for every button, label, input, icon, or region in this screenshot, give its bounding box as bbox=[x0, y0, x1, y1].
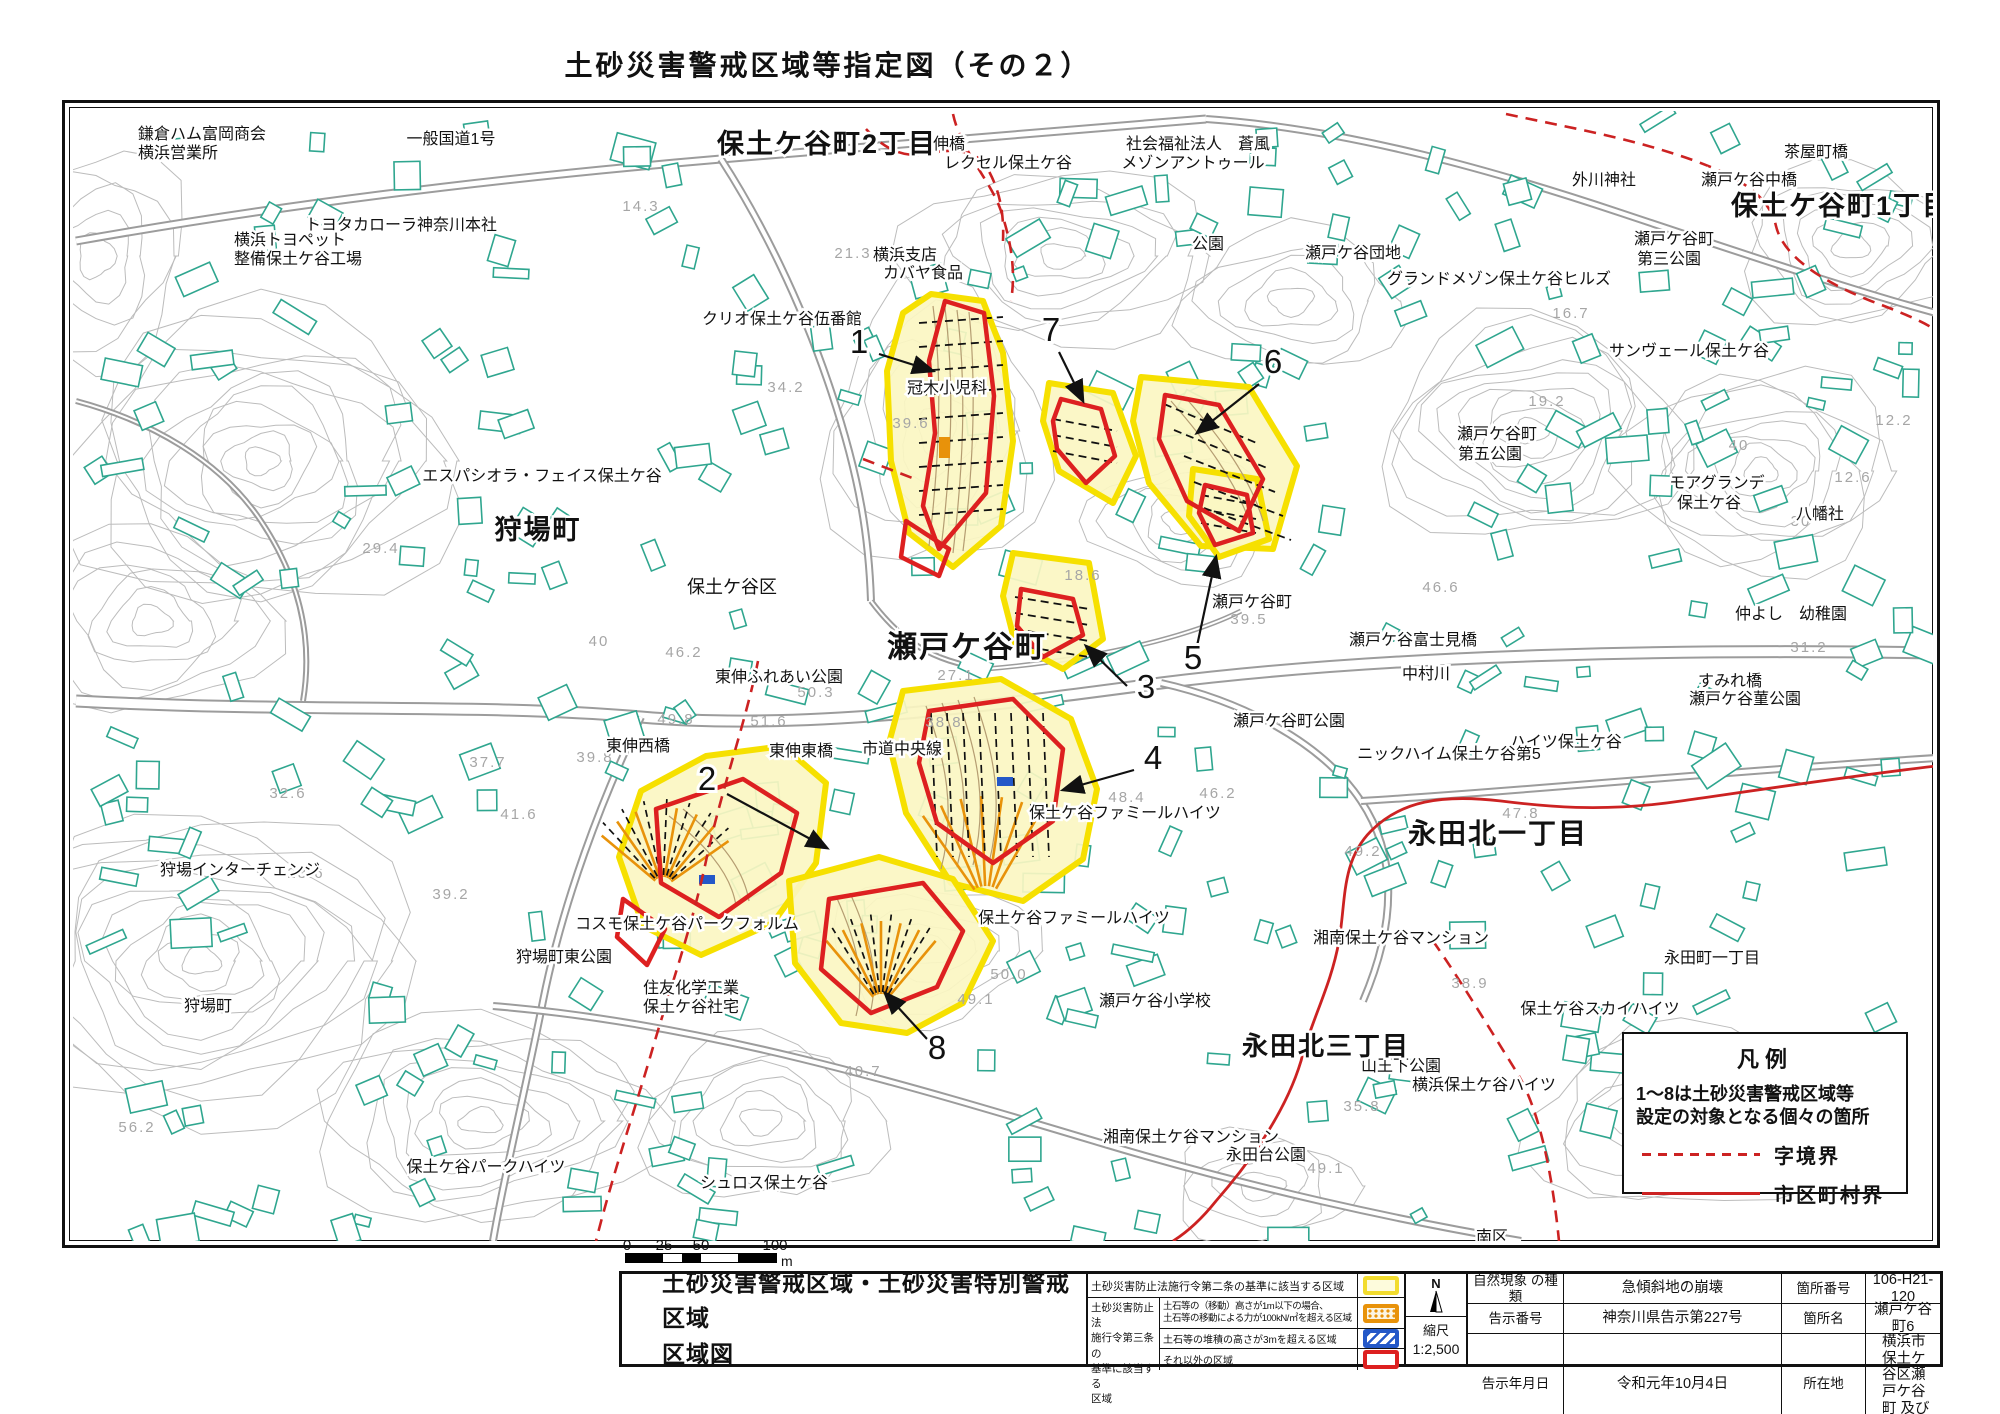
elevation-label: 39.2 bbox=[432, 886, 469, 903]
elevation-label: 40.7 bbox=[844, 1063, 881, 1080]
elevation-label: 34.2 bbox=[767, 379, 804, 396]
dashed-red-line-sample bbox=[1642, 1153, 1760, 1156]
scale-bar-ticks: 0 25 50 100 bbox=[625, 1237, 777, 1253]
sheet-title-line1: 土砂災害警戒区域・土砂災害特別警戒区域 bbox=[662, 1266, 1086, 1337]
map-place-label: 瀬戸ケ谷小学校 bbox=[1099, 992, 1211, 1010]
zone-row-red-label: それ以外の区域 bbox=[1160, 1349, 1358, 1370]
elevation-label: 27.1 bbox=[937, 667, 974, 684]
map-place-label: 狩場町 bbox=[184, 997, 232, 1015]
map-place-label: メゾンアントゥール bbox=[1121, 154, 1264, 172]
info-key: 告示番号 bbox=[1468, 1304, 1564, 1334]
map-place-label: すみれ橋 bbox=[1698, 672, 1762, 690]
sheet: 土砂災害警戒区域等指定図（その２） 14.321.334.239.616.719… bbox=[0, 0, 2000, 1414]
district-label: 瀬戸ケ谷町 bbox=[887, 631, 1047, 664]
map-place-label: 一般国道1号 bbox=[407, 130, 496, 148]
north-arrow-icon bbox=[1428, 1290, 1444, 1314]
map-place-label: 東伸ふれあい公園 bbox=[715, 668, 843, 686]
map-place-label: 横浜保土ケ谷ハイツ bbox=[1412, 1076, 1556, 1094]
info-value: 瀬戸ケ谷町6 bbox=[1866, 1304, 1940, 1334]
zone-marker-number: 8 bbox=[928, 1029, 946, 1066]
district-label: 永田北三丁目 bbox=[1242, 1031, 1410, 1061]
legend-item: 字境界 bbox=[1642, 1140, 1896, 1169]
scale-bar: 0 25 50 100 m bbox=[625, 1237, 777, 1263]
map-place-label: 東伸西橋 bbox=[606, 737, 670, 755]
elevation-label: 12.6 bbox=[1834, 469, 1871, 486]
map-place-label: 瀬戸ケ谷団地 bbox=[1305, 244, 1401, 262]
elevation-label: 49.1 bbox=[1307, 1160, 1344, 1177]
map-place-label: カバヤ食品 bbox=[883, 264, 963, 282]
map-place-label: 冠木小児科 bbox=[907, 379, 987, 397]
map-place-label: 保土ケ谷区 bbox=[687, 577, 777, 597]
scale-tick: 0 bbox=[623, 1237, 631, 1254]
elevation-label: 18.6 bbox=[1064, 567, 1101, 584]
elevation-label: 49.2 bbox=[1344, 843, 1381, 860]
map-place-label: 保土ケ谷スカイハイツ bbox=[1520, 1000, 1679, 1018]
info-key: 箇所名 bbox=[1782, 1304, 1866, 1334]
zone-row-orange-label: 土石等の（移動）高さが1m以下の場合、 土石等の移動による力が100kN/㎡を超… bbox=[1160, 1298, 1358, 1329]
map-place-label: エスパシオラ・フェイス保土ケ谷 bbox=[422, 467, 662, 485]
map-place-label: モアグランデ bbox=[1669, 473, 1764, 492]
zone-marker-number: 3 bbox=[1137, 668, 1155, 705]
map-place-label: 外川神社 bbox=[1572, 171, 1636, 189]
solid-red-line-sample bbox=[1642, 1192, 1760, 1195]
zone-swatch-blue bbox=[1358, 1329, 1404, 1349]
zone-article2-label: 土砂災害防止法施行令第二条の基準に該当する区域 bbox=[1088, 1274, 1358, 1298]
elevation-label: 40 bbox=[1729, 437, 1750, 454]
map-place-label: 仲よし 幼稚園 bbox=[1735, 605, 1847, 623]
map-place-label: シュロス保土ケ谷 bbox=[700, 1174, 828, 1192]
map-place-label: 鎌倉ハム富岡商会 bbox=[138, 125, 266, 143]
zone-swatch-red bbox=[1358, 1349, 1404, 1370]
map-place-label: 永田町一丁目 bbox=[1664, 949, 1760, 967]
zone-marker-number: 5 bbox=[1184, 639, 1202, 676]
zone-marker-number: 1 bbox=[850, 323, 868, 360]
map-place-label: 瀬戸ケ谷町 bbox=[1457, 425, 1537, 443]
legend-note-line2: 設定の対象となる個々の箇所 bbox=[1636, 1106, 1896, 1129]
elevation-label: 38.8 bbox=[925, 714, 962, 731]
elevation-label: 50.3 bbox=[797, 684, 834, 701]
info-key: 箇所番号 bbox=[1782, 1274, 1866, 1304]
info-value: 神奈川県告示第227号 bbox=[1564, 1304, 1782, 1334]
map-place-label: 保土ケ谷社宅 bbox=[643, 998, 739, 1016]
map-place-label: 保土ケ谷パークハイツ bbox=[407, 1158, 566, 1176]
map-place-label: 第五公園 bbox=[1458, 445, 1522, 463]
map-place-label: 中村川 bbox=[1402, 665, 1450, 683]
info-key: 自然現象 の種類 bbox=[1468, 1274, 1564, 1304]
info-value: 横浜市保土ケ谷区瀬戸ケ谷町 及び狩場町 bbox=[1866, 1334, 1940, 1414]
map-place-label: 市道中央線 bbox=[862, 740, 942, 758]
map-legend-box: 凡例 1～8は土砂災害警戒区域等 設定の対象となる個々の箇所 字境界市区町村界 bbox=[1622, 1032, 1908, 1194]
map-place-label: 湘南保土ケ谷マンション bbox=[1103, 1128, 1279, 1146]
scale-bar-segments bbox=[625, 1253, 777, 1263]
elevation-label: 38.9 bbox=[1451, 975, 1488, 992]
notice-info-cell: 自然現象 の種類 急傾斜地の崩壊 箇所番号 106-H21-120 告示番号 神… bbox=[1468, 1274, 1940, 1364]
elevation-label: 41.6 bbox=[500, 806, 537, 823]
north-compass: N bbox=[1406, 1274, 1466, 1317]
map-place-label: 保土ケ谷ファミールハイツ bbox=[1029, 804, 1221, 822]
zone-type-legend-cell: 土砂災害防止法施行令第二条の基準に該当する区域 土砂災害防止法 施行令第三条の … bbox=[1088, 1274, 1406, 1364]
map-place-label: 保土ケ谷 bbox=[1677, 494, 1741, 512]
map-place-label: 瀬戸ケ谷町 bbox=[1212, 593, 1292, 611]
map-place-label: 瀬戸ケ谷町公園 bbox=[1233, 712, 1345, 730]
elevation-label: 49.1 bbox=[957, 991, 994, 1008]
zone-article3-label: 土砂災害防止法 施行令第三条の 基準に該当する 区域 bbox=[1088, 1298, 1160, 1370]
scale-tick: 25 bbox=[656, 1237, 673, 1254]
zone-marker-number: 7 bbox=[1042, 311, 1060, 348]
elevation-label: 50.0 bbox=[990, 966, 1027, 983]
map-place-label: 狩場町東公園 bbox=[516, 948, 612, 966]
map-place-label: 第三公園 bbox=[1637, 250, 1701, 268]
map-place-label: 瀬戸ケ谷町 bbox=[1634, 230, 1714, 248]
zone-marker-number: 6 bbox=[1264, 343, 1282, 380]
district-label: 保土ケ谷町1丁目 bbox=[1730, 191, 1933, 221]
elevation-label: 46.6 bbox=[1422, 579, 1459, 596]
map-place-label: 南区 bbox=[1476, 1228, 1508, 1241]
map-place-label: ニックハイム保土ケ谷第5 bbox=[1357, 745, 1541, 763]
map-place-label: 瀬戸ケ谷中橋 bbox=[1701, 171, 1797, 189]
elevation-label: 56.2 bbox=[118, 1119, 155, 1136]
legend-item: 市区町村界 bbox=[1642, 1179, 1896, 1208]
elevation-label: 31.2 bbox=[1790, 639, 1827, 656]
legend-item-label: 字境界 bbox=[1774, 1140, 1840, 1169]
elevation-label: 35.8 bbox=[1343, 1098, 1380, 1115]
map-place-label: 湘南保土ケ谷マンション bbox=[1313, 929, 1489, 947]
map-place-label: 東伸東橋 bbox=[769, 742, 833, 760]
map-place-label: 狩場インターチェンジ bbox=[160, 861, 320, 879]
elevation-label: 39.6 bbox=[892, 415, 929, 432]
zone-marker-number: 4 bbox=[1144, 739, 1162, 776]
map-place-label: グランドメゾン保土ケ谷ヒルズ bbox=[1387, 270, 1611, 288]
scale-tick: 100 bbox=[762, 1237, 787, 1254]
elevation-label: 12.2 bbox=[1875, 412, 1912, 429]
map-place-label: 横浜支店 bbox=[873, 246, 937, 264]
elevation-label: 49.8 bbox=[657, 711, 694, 728]
scale-tick: 50 bbox=[693, 1237, 710, 1254]
info-key: 告示年月日 bbox=[1468, 1334, 1564, 1414]
map-place-label: レクセル保土ケ谷 bbox=[944, 154, 1072, 172]
info-value: 急傾斜地の崩壊 bbox=[1564, 1274, 1782, 1304]
zone-swatch-yellow bbox=[1358, 1274, 1404, 1298]
map-place-label: 住友化学工業 bbox=[643, 979, 739, 997]
zone-swatch-orange bbox=[1358, 1298, 1404, 1329]
elevation-label: 16.7 bbox=[1552, 305, 1589, 322]
map-place-label: コスモ保土ケ谷パークフォルム bbox=[575, 915, 799, 933]
elevation-label: 19.2 bbox=[1528, 393, 1565, 410]
elevation-label: 21.3 bbox=[834, 245, 871, 262]
map-place-label: 瀬戸ケ谷菫公園 bbox=[1689, 690, 1801, 708]
map-place-label: 八幡社 bbox=[1796, 505, 1844, 523]
district-label: 永田北一丁目 bbox=[1408, 818, 1588, 849]
zone-row-blue-label: 土石等の堆積の高さが3mを超える区域 bbox=[1160, 1329, 1358, 1349]
legend-item-label: 市区町村界 bbox=[1774, 1179, 1884, 1208]
elevation-label: 48.4 bbox=[1108, 789, 1145, 806]
map-place-label: 瀬戸ケ谷富士見橋 bbox=[1349, 631, 1477, 649]
map-place-label: クリオ保土ケ谷伍番館 bbox=[702, 310, 862, 328]
legend-title: 凡例 bbox=[1624, 1042, 1906, 1074]
page-title: 土砂災害警戒区域等指定図（その２） bbox=[564, 44, 1091, 84]
info-value: 令和元年10月4日 bbox=[1564, 1334, 1782, 1414]
map-place-label: 公園 bbox=[1192, 236, 1224, 253]
district-label: 保土ケ谷町2丁目 bbox=[716, 129, 937, 159]
zone-marker-number: 2 bbox=[698, 760, 716, 797]
map-place-label: 横浜営業所 bbox=[138, 144, 218, 162]
elevation-label: 37.7 bbox=[469, 754, 506, 771]
sheet-title-line2: 区域図 bbox=[662, 1337, 1086, 1373]
map-place-label: 整備保土ケ谷工場 bbox=[234, 250, 362, 268]
elevation-label: 40 bbox=[589, 633, 610, 650]
elevation-label: 32.6 bbox=[269, 785, 306, 802]
map-place-label: 茶屋町橋 bbox=[1784, 143, 1848, 161]
elevation-label: 29.4 bbox=[362, 540, 399, 557]
legend-note-line1: 1～8は土砂災害警戒区域等 bbox=[1636, 1083, 1896, 1106]
map-place-label: 横浜トヨペット bbox=[234, 231, 346, 249]
district-label: 狩場町 bbox=[495, 515, 582, 545]
elevation-label: 14.3 bbox=[622, 198, 659, 215]
info-key: 所在地 bbox=[1782, 1334, 1866, 1414]
legend-items: 字境界市区町村界 bbox=[1642, 1140, 1896, 1208]
map-place-label: 永田台公園 bbox=[1226, 1146, 1306, 1164]
elevation-label: 46.2 bbox=[665, 644, 702, 661]
map-place-label: 保土ケ谷ファミールハイツ bbox=[978, 909, 1170, 927]
info-value: 106-H21-120 bbox=[1866, 1274, 1940, 1304]
map-place-label: 社会福祉法人 蒼風 bbox=[1126, 135, 1270, 153]
sheet-title-cell: 土砂災害警戒区域・土砂災害特別警戒区域 区域図 bbox=[622, 1274, 1088, 1364]
scale-ratio: 縮尺 1:2,500 bbox=[1406, 1317, 1466, 1364]
elevation-label: 39.5 bbox=[1230, 611, 1267, 628]
compass-scale-cell: N 縮尺 1:2,500 bbox=[1406, 1274, 1468, 1364]
map-place-label: サンヴェール保土ケ谷 bbox=[1609, 342, 1769, 360]
elevation-label: 51.6 bbox=[750, 713, 787, 730]
footer-table: 土砂災害警戒区域・土砂災害特別警戒区域 区域図 土砂災害防止法施行令第二条の基準… bbox=[619, 1271, 1943, 1367]
elevation-label: 46.2 bbox=[1199, 785, 1236, 802]
